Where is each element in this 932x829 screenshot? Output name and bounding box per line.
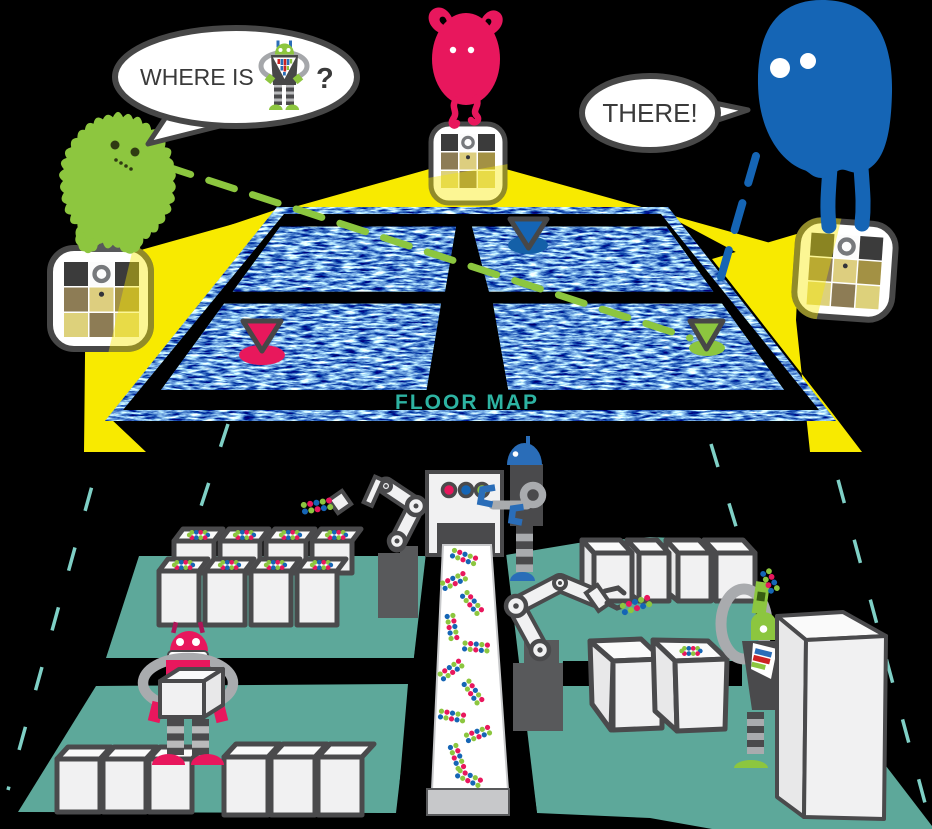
svg-text:FLOOR MAP: FLOOR MAP: [395, 391, 539, 414]
svg-text:?: ?: [316, 63, 334, 95]
svg-text:WHERE IS: WHERE IS: [140, 64, 254, 90]
svg-text:THERE!: THERE!: [602, 98, 697, 128]
